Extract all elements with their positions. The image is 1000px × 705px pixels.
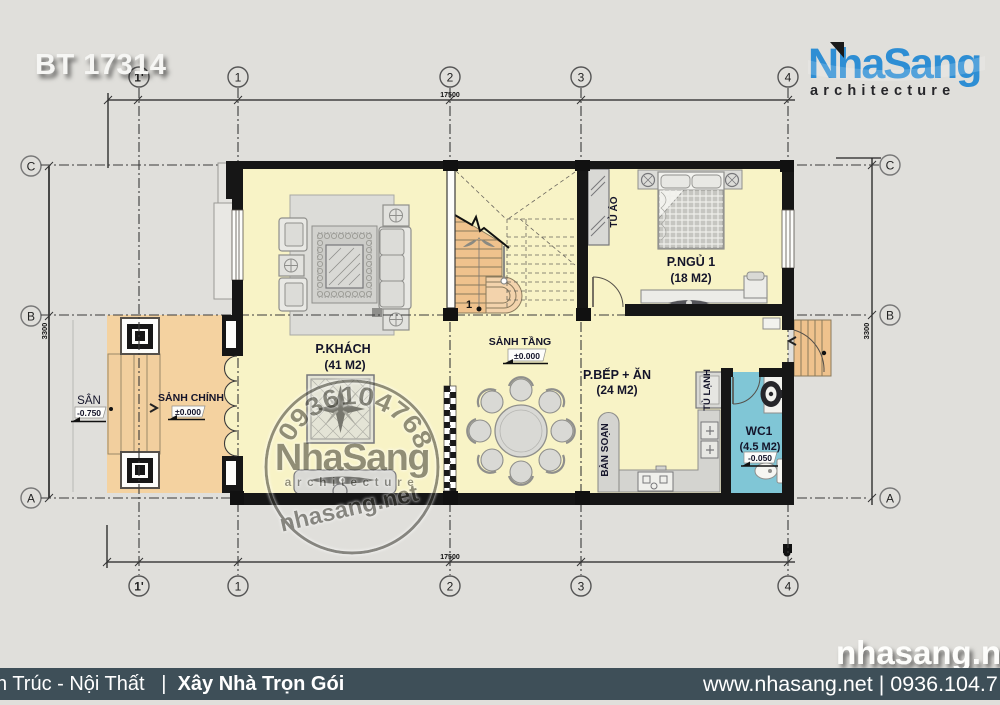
svg-text:(18 M2): (18 M2) bbox=[670, 271, 711, 285]
svg-text:(41 M2): (41 M2) bbox=[324, 358, 365, 372]
svg-text:3: 3 bbox=[578, 580, 585, 594]
svg-text:2: 2 bbox=[447, 580, 454, 594]
svg-text:B: B bbox=[27, 310, 35, 324]
svg-text:(4.5 M2): (4.5 M2) bbox=[740, 441, 781, 453]
svg-text:TỦ ÁO: TỦ ÁO bbox=[607, 196, 620, 227]
svg-text:BT 17314: BT 17314 bbox=[35, 49, 166, 81]
svg-text:1: 1 bbox=[466, 299, 472, 311]
svg-text:C: C bbox=[886, 159, 895, 173]
svg-text:A: A bbox=[886, 492, 894, 506]
svg-text:3300: 3300 bbox=[862, 323, 871, 340]
svg-text:TỦ LẠNH: TỦ LẠNH bbox=[701, 369, 713, 411]
svg-text:architecture: architecture bbox=[810, 83, 955, 99]
svg-text:1: 1 bbox=[235, 71, 242, 85]
svg-text:nhasang.ne: nhasang.ne bbox=[836, 634, 1000, 671]
svg-text:1': 1' bbox=[134, 580, 144, 594]
svg-text:C: C bbox=[27, 160, 36, 174]
svg-text:B: B bbox=[886, 309, 894, 323]
svg-text:2: 2 bbox=[447, 71, 454, 85]
svg-text:-0.050: -0.050 bbox=[748, 453, 772, 463]
svg-text:(24 M2): (24 M2) bbox=[596, 383, 637, 397]
svg-text:3300: 3300 bbox=[40, 323, 49, 340]
svg-text:P.KHÁCH: P.KHÁCH bbox=[315, 341, 370, 356]
svg-text:www.nhasang.net | 0936.104.7: www.nhasang.net | 0936.104.7 bbox=[702, 672, 998, 696]
svg-text:±0.000: ±0.000 bbox=[514, 351, 540, 361]
svg-text:P.NGỦ 1: P.NGỦ 1 bbox=[667, 254, 715, 269]
svg-text:4: 4 bbox=[785, 71, 792, 85]
svg-text:SÂN: SÂN bbox=[77, 394, 101, 407]
svg-text:3: 3 bbox=[578, 71, 585, 85]
svg-text:1: 1 bbox=[235, 580, 242, 594]
svg-text:WC1: WC1 bbox=[746, 424, 773, 438]
svg-text:SẢNH CHÍNH: SẢNH CHÍNH bbox=[158, 391, 224, 404]
svg-text:BÀN SOẠN: BÀN SOẠN bbox=[598, 423, 611, 476]
svg-text:A: A bbox=[27, 492, 35, 506]
svg-text:±0.000: ±0.000 bbox=[175, 407, 201, 417]
svg-text:4: 4 bbox=[785, 580, 792, 594]
svg-text:SẢNH TẦNG: SẢNH TẦNG bbox=[489, 335, 551, 348]
svg-text:n Trúc - Nội Thất | Xây Nhà: n Trúc - Nội Thất | Xây Nhà Trọn Gói bbox=[0, 673, 344, 695]
svg-text:-0.750: -0.750 bbox=[77, 408, 101, 418]
svg-text:P.BẾP + ĂN: P.BẾP + ĂN bbox=[583, 367, 651, 382]
svg-text:NhaSang: NhaSang bbox=[275, 437, 429, 479]
